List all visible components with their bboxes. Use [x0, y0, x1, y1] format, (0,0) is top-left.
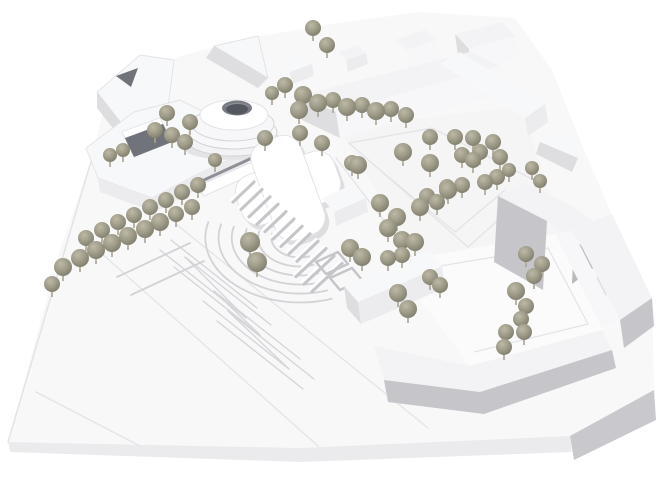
tree	[103, 148, 117, 162]
tree	[349, 156, 367, 174]
tree	[394, 247, 410, 263]
tree	[380, 250, 396, 266]
tree	[411, 198, 429, 216]
tree	[290, 101, 308, 119]
tree	[319, 37, 335, 53]
tree	[533, 174, 547, 188]
tree	[389, 284, 407, 302]
tree	[126, 207, 142, 223]
tree	[182, 114, 198, 130]
tree	[367, 102, 385, 120]
tree	[371, 194, 389, 212]
tree	[277, 77, 293, 93]
tree	[399, 300, 417, 318]
tree	[240, 232, 260, 252]
tree	[314, 135, 330, 151]
tree	[265, 86, 279, 100]
tree	[116, 143, 130, 157]
tree	[54, 258, 72, 276]
tree	[398, 107, 414, 123]
model-scene-svg	[0, 0, 658, 487]
tree	[142, 199, 158, 215]
tree	[432, 277, 448, 293]
tree	[190, 177, 206, 193]
tree	[485, 134, 501, 150]
tree	[465, 130, 481, 146]
tree	[158, 192, 174, 208]
tree	[44, 276, 60, 292]
tree	[496, 339, 512, 355]
tree	[492, 149, 508, 165]
tree	[429, 194, 445, 210]
tree	[421, 154, 439, 172]
tree	[507, 282, 525, 300]
tree	[516, 324, 532, 340]
tree	[498, 324, 514, 340]
tree	[119, 227, 137, 245]
tree	[110, 214, 126, 230]
tree	[136, 220, 154, 238]
tree	[394, 143, 412, 161]
tree	[379, 219, 397, 237]
tree	[159, 105, 175, 121]
tree	[338, 98, 356, 116]
tree	[526, 268, 542, 284]
tree	[525, 161, 539, 175]
tree	[292, 125, 308, 141]
tree	[518, 246, 534, 262]
tree	[103, 234, 121, 252]
tree	[87, 241, 105, 259]
tree	[447, 129, 463, 145]
tree	[257, 130, 273, 146]
tree	[71, 249, 89, 267]
tree	[177, 134, 193, 150]
tree	[247, 252, 267, 272]
tree	[208, 153, 222, 167]
tree	[147, 122, 163, 138]
tree	[383, 101, 399, 117]
architectural-model-photograph	[0, 0, 658, 487]
tree	[406, 233, 424, 251]
tree	[353, 248, 371, 266]
tree	[168, 206, 184, 222]
tree	[309, 94, 327, 112]
tree	[422, 129, 438, 145]
tree	[184, 199, 200, 215]
tree	[465, 152, 481, 168]
tree	[305, 20, 321, 36]
tree	[174, 184, 190, 200]
tree	[477, 174, 493, 190]
